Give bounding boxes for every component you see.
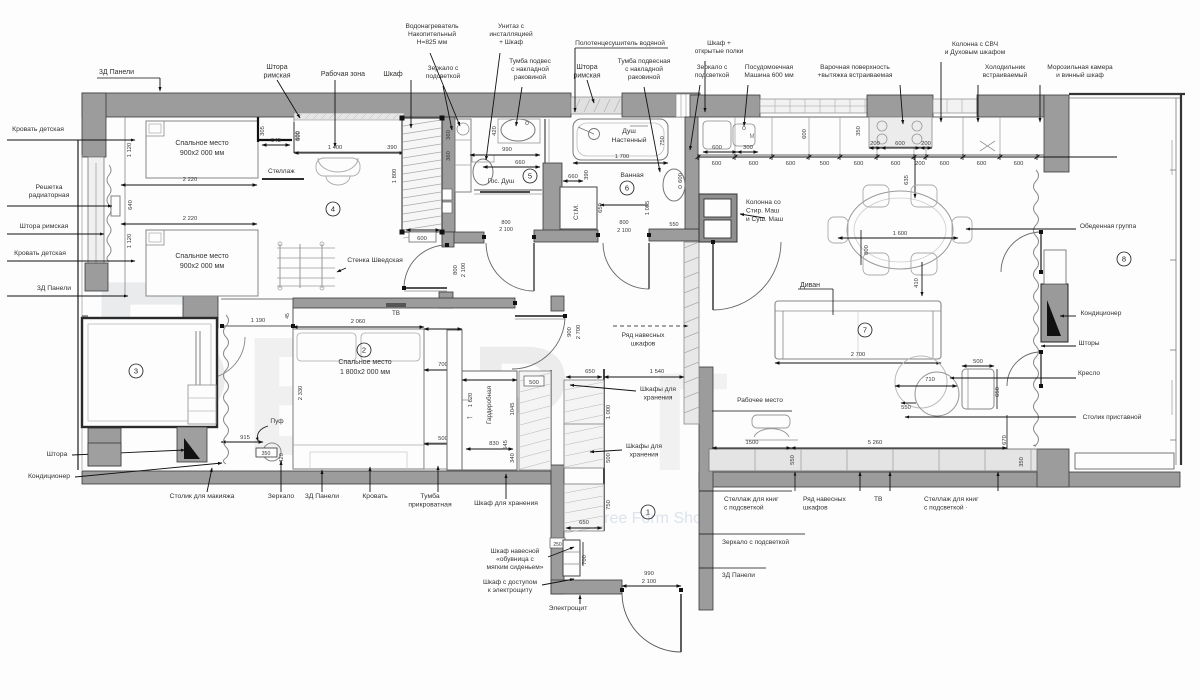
svg-text:Шкаф +: Шкаф + xyxy=(707,40,731,47)
svg-text:Тумба подвесная: Тумба подвесная xyxy=(618,57,671,65)
svg-text:1500: 1500 xyxy=(746,440,759,446)
svg-text:Стеллаж: Стеллаж xyxy=(268,168,295,175)
svg-text:200: 200 xyxy=(921,141,931,147)
svg-text:+ Шкаф: + Шкаф xyxy=(499,39,523,46)
svg-text:420: 420 xyxy=(492,126,498,136)
svg-text:«обувница с: «обувница с xyxy=(496,555,534,563)
svg-text:Рабочее место: Рабочее место xyxy=(737,396,783,404)
svg-text:Тумба: Тумба xyxy=(420,492,439,500)
svg-text:Ванная: Ванная xyxy=(620,172,644,179)
svg-text:2 100: 2 100 xyxy=(642,579,657,585)
svg-text:с накладной: с накладной xyxy=(625,65,663,73)
svg-text:750: 750 xyxy=(606,500,612,510)
svg-text:Зеркало с подсветкой: Зеркало с подсветкой xyxy=(722,538,789,546)
svg-text:350: 350 xyxy=(262,451,271,457)
svg-text:Холодильник: Холодильник xyxy=(985,64,1025,71)
svg-text:545: 545 xyxy=(271,138,281,144)
svg-text:600: 600 xyxy=(891,161,901,167)
svg-text:Кровать: Кровать xyxy=(362,493,388,500)
svg-text:600: 600 xyxy=(417,236,427,242)
svg-text:600: 600 xyxy=(749,161,759,167)
svg-text:2 060: 2 060 xyxy=(351,319,366,325)
svg-text:45: 45 xyxy=(285,313,291,319)
svg-text:Полотенцесушитель водяной: Полотенцесушитель водяной xyxy=(575,39,665,47)
svg-text:Столик для макияжа: Столик для макияжа xyxy=(170,493,235,500)
svg-text:Шкафы для: Шкафы для xyxy=(626,443,662,450)
svg-text:7: 7 xyxy=(863,326,867,335)
svg-text:2 700: 2 700 xyxy=(851,352,866,358)
svg-text:Зеркало с: Зеркало с xyxy=(697,64,728,71)
svg-text:Стир. Маш: Стир. Маш xyxy=(746,208,779,215)
svg-text:3Д Панели: 3Д Панели xyxy=(305,493,339,500)
svg-text:650: 650 xyxy=(598,203,604,213)
svg-text:800: 800 xyxy=(619,220,628,226)
svg-text:650: 650 xyxy=(579,520,589,526)
svg-text:Гардеробная: Гардеробная xyxy=(485,386,493,424)
svg-text:Настенный: Настенный xyxy=(611,136,646,144)
svg-text:Спальное место: Спальное место xyxy=(175,253,228,260)
svg-text:Стеллаж для книг: Стеллаж для книг xyxy=(924,496,979,503)
svg-text:1 085: 1 085 xyxy=(645,201,651,216)
svg-text:1 800х2 000 мм: 1 800х2 000 мм xyxy=(340,369,390,376)
svg-text:Обеденная группа: Обеденная группа xyxy=(1080,222,1137,230)
svg-text:750: 750 xyxy=(660,136,666,146)
svg-text:800: 800 xyxy=(501,220,510,226)
svg-text:подсветкой: подсветкой xyxy=(426,72,461,80)
svg-text:650: 650 xyxy=(585,369,595,375)
svg-text:800: 800 xyxy=(453,265,459,275)
svg-text:1 600: 1 600 xyxy=(893,231,908,237)
svg-text:римская: римская xyxy=(573,73,600,80)
svg-text:Стенка Шведская: Стенка Шведская xyxy=(347,257,403,264)
svg-text:2 330: 2 330 xyxy=(298,386,304,401)
svg-text:390: 390 xyxy=(584,170,590,180)
svg-text:Варочная поверхность: Варочная поверхность xyxy=(820,64,890,71)
svg-text:600: 600 xyxy=(678,173,684,183)
svg-text:Рабочая зона: Рабочая зона xyxy=(321,70,365,78)
svg-text:Гос. Душ: Гос. Душ xyxy=(488,178,515,185)
svg-text:Шкаф навесной: Шкаф навесной xyxy=(491,547,540,555)
svg-text:Штора: Штора xyxy=(47,451,68,458)
svg-text:римская: римская xyxy=(263,73,290,80)
svg-text:5 260: 5 260 xyxy=(868,440,883,446)
svg-text:1 120: 1 120 xyxy=(127,234,133,249)
svg-text:инсталляцией: инсталляцией xyxy=(489,30,533,38)
svg-text:500: 500 xyxy=(606,453,612,463)
svg-text:Штора: Штора xyxy=(266,64,287,71)
svg-text:Посудомоечная: Посудомоечная xyxy=(745,64,794,71)
svg-text:550: 550 xyxy=(669,222,678,228)
svg-text:Унитаз с: Унитаз с xyxy=(498,23,525,30)
svg-text:1045: 1045 xyxy=(510,403,516,416)
svg-text:Шкаф с доступом: Шкаф с доступом xyxy=(483,579,538,586)
svg-text:1 190: 1 190 xyxy=(251,318,266,324)
svg-text:305: 305 xyxy=(260,126,266,136)
svg-text:Душ: Душ xyxy=(622,128,636,135)
svg-text:640: 640 xyxy=(128,200,134,210)
svg-text:2 700: 2 700 xyxy=(576,325,582,340)
svg-text:200: 200 xyxy=(870,141,880,147)
svg-text:Ряд навесных: Ряд навесных xyxy=(622,332,666,339)
svg-text:Кресло: Кресло xyxy=(1078,370,1100,377)
svg-text:700: 700 xyxy=(438,362,448,368)
svg-text:660: 660 xyxy=(568,174,578,180)
svg-text:500: 500 xyxy=(438,436,448,442)
svg-text:2 220: 2 220 xyxy=(183,177,198,183)
svg-text:390: 390 xyxy=(387,145,397,151)
svg-text:с подсветкой ·: с подсветкой · xyxy=(924,504,968,512)
svg-text:2: 2 xyxy=(362,346,366,355)
svg-text:600: 600 xyxy=(895,141,905,147)
svg-text:710: 710 xyxy=(925,377,935,383)
svg-text:М: М xyxy=(750,134,755,140)
svg-text:и Суш. Маш: и Суш. Маш xyxy=(746,216,783,223)
svg-text:Кондиционер: Кондиционер xyxy=(1081,310,1122,317)
svg-text:545: 545 xyxy=(503,440,509,450)
svg-text:↑: ↑ xyxy=(464,416,474,421)
svg-text:Тумба подвес: Тумба подвес xyxy=(509,57,551,65)
svg-text:к электрощиту: к электрощиту xyxy=(488,587,533,594)
svg-text:1 620: 1 620 xyxy=(468,393,474,408)
svg-text:660: 660 xyxy=(515,160,525,166)
svg-text:и Духовым шкафом: и Духовым шкафом xyxy=(945,49,1006,56)
svg-text:Стеллаж для книг: Стеллаж для книг xyxy=(724,496,779,503)
svg-text:Электрощит: Электрощит xyxy=(549,605,588,612)
svg-text:раковиной: раковиной xyxy=(514,73,546,81)
svg-text:Ст.М.: Ст.М. xyxy=(573,204,580,220)
svg-text:3: 3 xyxy=(134,367,138,376)
svg-text:Колонна со: Колонна со xyxy=(746,199,781,206)
svg-text:Диван: Диван xyxy=(800,282,820,289)
svg-text:Кондиционер: Кондиционер xyxy=(28,473,70,480)
svg-text:6: 6 xyxy=(625,184,629,193)
svg-text:8: 8 xyxy=(1122,255,1126,264)
svg-text:радиаторная: радиаторная xyxy=(29,192,70,199)
svg-text:915: 915 xyxy=(240,435,250,441)
svg-text:Спальное место: Спальное место xyxy=(175,140,228,147)
svg-text:250: 250 xyxy=(553,542,562,548)
svg-text:600: 600 xyxy=(786,161,796,167)
svg-text:Столик приставной: Столик приставной xyxy=(1083,413,1142,421)
svg-text:350: 350 xyxy=(1019,457,1025,467)
svg-text:600: 600 xyxy=(296,131,302,141)
svg-text:500: 500 xyxy=(529,380,539,386)
svg-text:635: 635 xyxy=(904,175,910,185)
svg-text:мягким сиденьем»: мягким сиденьем» xyxy=(487,564,544,571)
svg-text:подсветкой: подсветкой xyxy=(695,71,730,79)
svg-text:600: 600 xyxy=(940,161,950,167)
svg-text:990: 990 xyxy=(644,571,654,577)
svg-text:500: 500 xyxy=(820,161,830,167)
svg-text:Морозильная камера: Морозильная камера xyxy=(1047,64,1113,71)
svg-text:хранения: хранения xyxy=(644,395,673,402)
svg-text:встраиваемый: встраиваемый xyxy=(983,71,1028,79)
svg-text:Кровать детская: Кровать детская xyxy=(14,250,66,257)
svg-text:3Д Панели: 3Д Панели xyxy=(722,572,755,579)
svg-text:1 800: 1 800 xyxy=(392,169,398,184)
svg-text:2 100: 2 100 xyxy=(461,263,467,278)
svg-text:Зеркало: Зеркало xyxy=(268,493,295,500)
svg-text:600: 600 xyxy=(1014,161,1024,167)
svg-text:200: 200 xyxy=(915,161,925,167)
svg-text:Шкаф: Шкаф xyxy=(383,71,403,78)
svg-text:Колонна с СВЧ: Колонна с СВЧ xyxy=(952,41,998,48)
svg-text:ТВ: ТВ xyxy=(392,311,400,317)
svg-text:900х2 000 мм: 900х2 000 мм xyxy=(180,263,224,270)
svg-text:1 000: 1 000 xyxy=(606,405,612,420)
svg-text:600: 600 xyxy=(802,129,808,139)
svg-text:420: 420 xyxy=(279,453,285,463)
svg-text:830: 830 xyxy=(489,441,499,447)
svg-text:1 540: 1 540 xyxy=(650,369,665,375)
svg-text:600: 600 xyxy=(712,161,722,167)
svg-text:550: 550 xyxy=(901,405,911,411)
svg-text:900х2 000 мм: 900х2 000 мм xyxy=(180,150,224,157)
svg-text:360: 360 xyxy=(446,151,452,161)
svg-text:шкафов: шкафов xyxy=(631,341,656,348)
svg-text:Решетка: Решетка xyxy=(35,184,62,191)
svg-text:3Д Панели: 3Д Панели xyxy=(99,69,134,76)
svg-text:990: 990 xyxy=(502,147,512,153)
svg-text:прикроватная: прикроватная xyxy=(408,502,452,509)
svg-text:410: 410 xyxy=(914,278,920,288)
svg-text:Штора: Штора xyxy=(576,64,597,71)
svg-text:и винный шкаф: и винный шкаф xyxy=(1056,71,1104,79)
svg-text:Накопительный: Накопительный xyxy=(408,30,456,38)
svg-text:Пуф: Пуф xyxy=(270,418,284,425)
svg-text:300: 300 xyxy=(743,145,753,151)
svg-text:хранения: хранения xyxy=(630,452,659,459)
svg-text:550: 550 xyxy=(790,455,796,465)
svg-text:Машина 600 мм: Машина 600 мм xyxy=(744,72,794,79)
svg-text:с накладной: с накладной xyxy=(511,65,549,73)
svg-text:Штора римская: Штора римская xyxy=(20,223,69,230)
svg-text:2 100: 2 100 xyxy=(617,228,631,234)
svg-text:+вытяжка встраиваемая: +вытяжка встраиваемая xyxy=(818,72,893,79)
svg-text:Водонагреватель: Водонагреватель xyxy=(405,23,459,30)
svg-text:2 100: 2 100 xyxy=(499,227,513,233)
svg-text:раковиной: раковиной xyxy=(628,73,660,81)
svg-text:Шкафы для: Шкафы для xyxy=(640,386,676,393)
svg-text:шкафов: шкафов xyxy=(803,505,828,512)
svg-text:Шкаф для хранения: Шкаф для хранения xyxy=(474,500,538,507)
svg-text:3Д Панели: 3Д Панели xyxy=(37,285,71,292)
svg-text:1: 1 xyxy=(646,508,650,517)
svg-text:600: 600 xyxy=(854,161,864,167)
svg-text:340: 340 xyxy=(510,453,516,463)
svg-text:с подсветкой: с подсветкой xyxy=(724,504,764,512)
svg-text:Спальное место: Спальное место xyxy=(338,359,391,366)
svg-text:600: 600 xyxy=(977,161,987,167)
svg-text:Шторы: Шторы xyxy=(1078,340,1099,347)
svg-text:ТВ: ТВ xyxy=(874,496,883,503)
svg-text:900: 900 xyxy=(567,327,573,337)
svg-text:4: 4 xyxy=(331,205,335,214)
svg-text:360: 360 xyxy=(446,130,452,140)
svg-text:2 220: 2 220 xyxy=(183,216,198,222)
svg-text:500: 500 xyxy=(973,359,983,365)
svg-text:650: 650 xyxy=(995,387,1001,397)
svg-text:Кровать детская: Кровать детская xyxy=(12,126,64,133)
svg-text:Ряд навесных: Ряд навесных xyxy=(803,496,847,503)
svg-text:Н=825 мм: Н=825 мм xyxy=(417,39,448,46)
svg-text:Зеркало с: Зеркало с xyxy=(428,65,459,72)
svg-text:800: 800 xyxy=(864,245,870,255)
svg-text:1 700: 1 700 xyxy=(615,154,630,160)
svg-text:открытые полки: открытые полки xyxy=(695,48,744,55)
svg-text:1 120: 1 120 xyxy=(127,143,133,158)
svg-text:600: 600 xyxy=(712,145,722,151)
svg-text:350: 350 xyxy=(856,126,862,136)
svg-text:5: 5 xyxy=(528,172,532,181)
